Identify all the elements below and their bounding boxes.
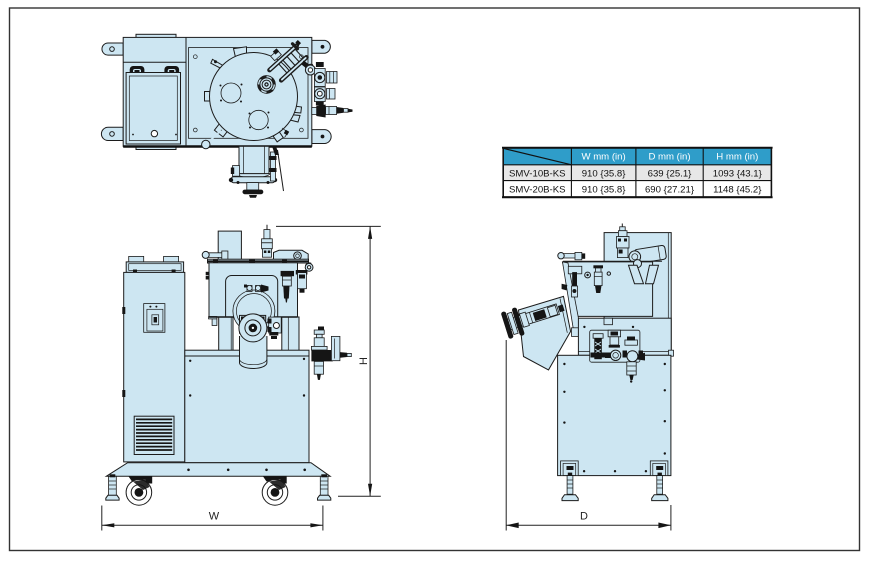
svg-text:H mm (in): H mm (in) bbox=[716, 152, 758, 163]
svg-text:1093 {43.1}: 1093 {43.1} bbox=[713, 168, 763, 179]
svg-text:SMV-20B-KS: SMV-20B-KS bbox=[509, 184, 566, 195]
svg-text:W: W bbox=[209, 511, 220, 523]
svg-text:W mm (in): W mm (in) bbox=[581, 152, 625, 163]
svg-text:H: H bbox=[358, 357, 370, 365]
svg-text:1148 {45.2}: 1148 {45.2} bbox=[713, 184, 762, 195]
svg-text:910 {35.8}: 910 {35.8} bbox=[582, 168, 627, 179]
svg-text:639 {25.1}: 639 {25.1} bbox=[648, 168, 693, 179]
svg-text:690 {27.21}: 690 {27.21} bbox=[645, 184, 695, 195]
svg-text:D: D bbox=[580, 511, 588, 523]
svg-text:910 {35.8}: 910 {35.8} bbox=[582, 184, 627, 195]
svg-text:SMV-10B-KS: SMV-10B-KS bbox=[509, 168, 566, 179]
svg-text:D mm (in): D mm (in) bbox=[648, 152, 690, 163]
